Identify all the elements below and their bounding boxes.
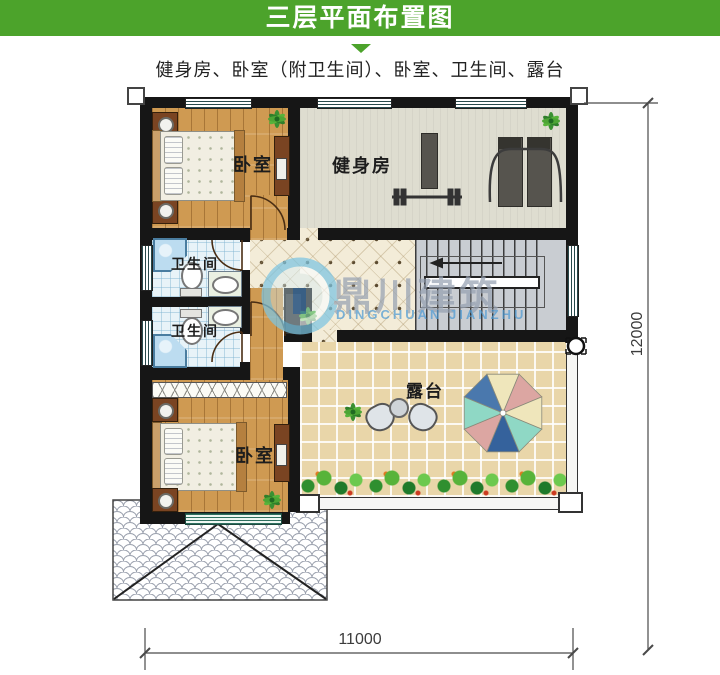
wall-bath-bedroom (140, 367, 250, 380)
window-bedroom-bottom (185, 513, 282, 525)
floor-plan-page: 三层平面布置图 健身房、卧室（附卫生间）、卧室、卫生间、露台 (0, 0, 720, 675)
treadmill-console (527, 137, 550, 149)
corridor-floor (250, 288, 283, 380)
wall-seg (287, 228, 300, 240)
window-stairs (567, 245, 579, 317)
sink (212, 276, 239, 294)
page-title-banner: 三层平面布置图 (0, 0, 720, 36)
stair-handrail (424, 276, 540, 289)
window-top-1 (185, 98, 252, 109)
toilet-tank (180, 288, 202, 297)
corner-marker-left (127, 87, 145, 105)
lamp-icon (158, 203, 174, 219)
terrace-post (558, 492, 583, 513)
bedroom-top-door-area (250, 195, 287, 240)
room-label-bedroom-bottom: 卧室 (200, 442, 310, 468)
terrace-doorway (312, 330, 337, 342)
treadmill-console (498, 137, 521, 149)
terrace-parapet-bottom (300, 497, 579, 510)
hall-cabinet (286, 294, 301, 334)
gym-bench (421, 133, 438, 189)
lamp-icon (158, 493, 174, 509)
nightstand (152, 488, 178, 512)
pillow (164, 458, 183, 485)
terrace-parapet-right (566, 352, 578, 499)
wall-seg2 (283, 367, 300, 380)
dimension-bottom: 11000 (320, 631, 400, 649)
lamp-icon (158, 403, 174, 419)
pillow (164, 167, 183, 195)
room-label-bathroom-top: 卫生间 (150, 254, 240, 274)
window-top-2 (317, 98, 392, 109)
room-label-bathroom-bottom: 卫生间 (150, 321, 240, 341)
room-label-gym: 健身房 (302, 152, 422, 178)
banner-pointer-triangle (351, 44, 371, 53)
wardrobe (152, 382, 287, 398)
nightstand (152, 398, 178, 422)
corner-marker-right (570, 87, 588, 105)
wall-stairs-terrace (337, 330, 566, 342)
dimension-right: 12000 (629, 292, 647, 376)
window-top-3 (455, 98, 527, 109)
terrace-planter-strip (300, 468, 566, 498)
plan-room-list-subtitle: 健身房、卧室（附卫生间）、卧室、卫生间、露台 (0, 56, 720, 82)
wall-gym-bottom (318, 228, 566, 240)
room-label-terrace: 露台 (375, 377, 475, 402)
room-label-bedroom-top: 卧室 (198, 151, 308, 177)
pillow (164, 428, 183, 455)
pillow (164, 136, 183, 164)
wall-corridor-c (240, 362, 250, 380)
wall-corridor-a (240, 228, 250, 242)
